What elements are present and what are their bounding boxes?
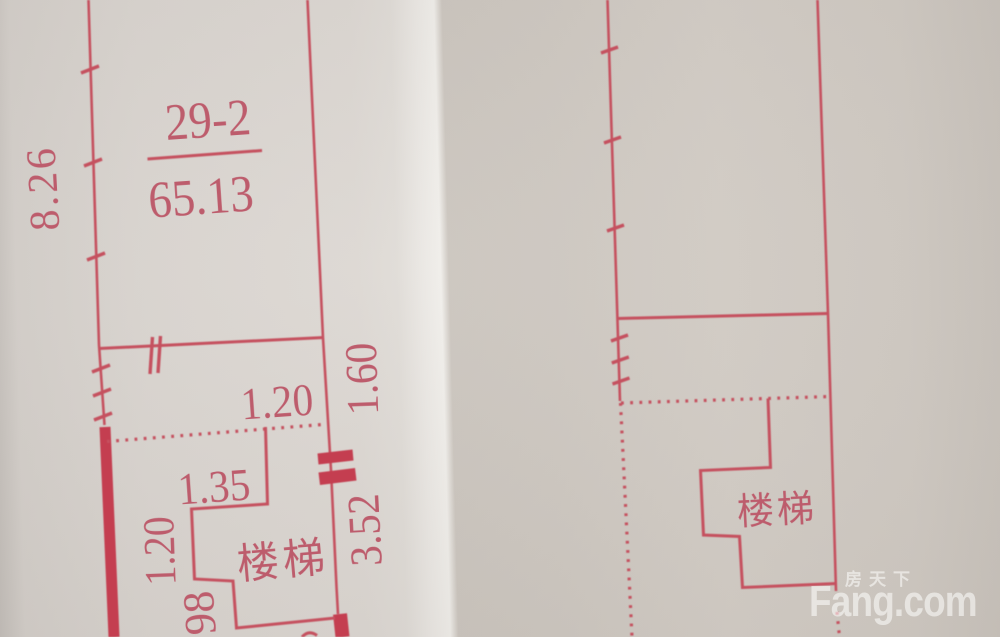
wall-opening-bars (318, 450, 357, 486)
right-plan (601, 0, 840, 637)
dimension-left-lower-height: 1.20 (137, 516, 183, 587)
wall-break-symbol (150, 336, 161, 374)
left-plan-left-dimension-line (89, 0, 105, 425)
dimension-right-upper-height: 1.60 (338, 342, 387, 416)
dimension-right-lower-height: 3.52 (340, 493, 390, 568)
room-label-fraction-bar (148, 151, 263, 160)
floor-plan-photo: 8.26 29-2 65.13 1.20 1.60 1.35 1.20 3.52… (0, 0, 1000, 637)
right-plan-dotted-partition (621, 397, 831, 404)
left-plan-dotted-partition (107, 424, 329, 442)
left-plan-thick-wall (105, 427, 114, 637)
room-number-label: 29-2 (163, 92, 252, 150)
stairs-label-right: 楼梯 (736, 490, 818, 531)
left-plan-bottom-right-wall (340, 614, 343, 637)
stairs-label-left: 楼梯 (235, 537, 330, 587)
right-plan-right-boundary (818, 0, 837, 591)
dimension-bottom-partial: 98 (177, 590, 224, 637)
cutoff-stroke (302, 633, 317, 637)
right-plan-top-wall (618, 314, 828, 319)
dimension-stairs-width: 1.35 (176, 462, 251, 513)
left-plan-right-boundary (308, 0, 339, 614)
dimension-left-height: 8.26 (21, 144, 67, 232)
left-plan-top-wall (99, 338, 324, 349)
right-plan-left-dotted-line (621, 403, 633, 637)
room-area-label: 65.13 (147, 168, 256, 227)
fang-watermark-logo: Fang.com (809, 580, 977, 624)
dimension-top-width: 1.20 (239, 377, 314, 428)
